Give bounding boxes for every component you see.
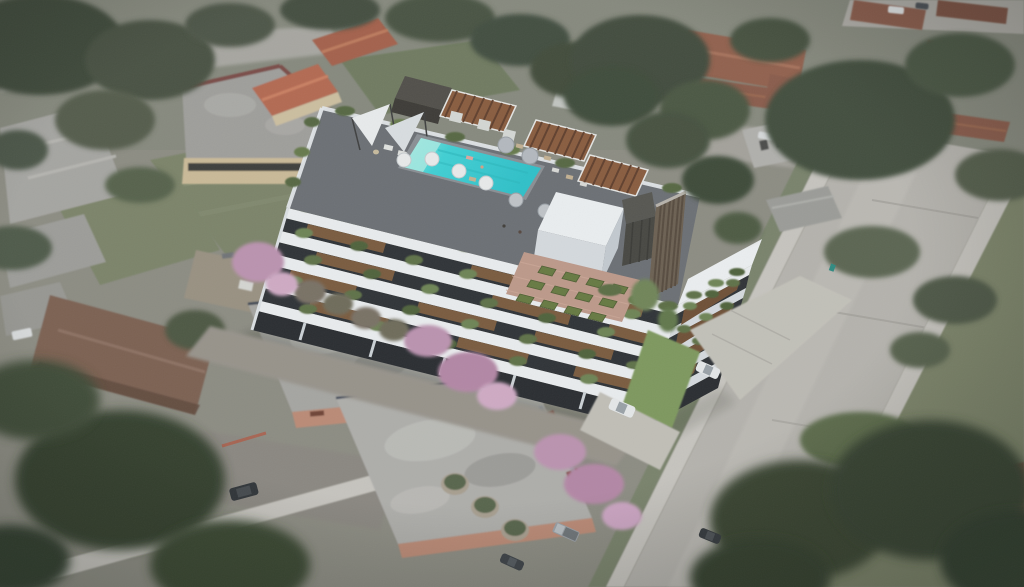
vignette [0,0,1024,587]
aerial-site-rendering [0,0,1024,587]
rendering-canvas [0,0,1024,587]
